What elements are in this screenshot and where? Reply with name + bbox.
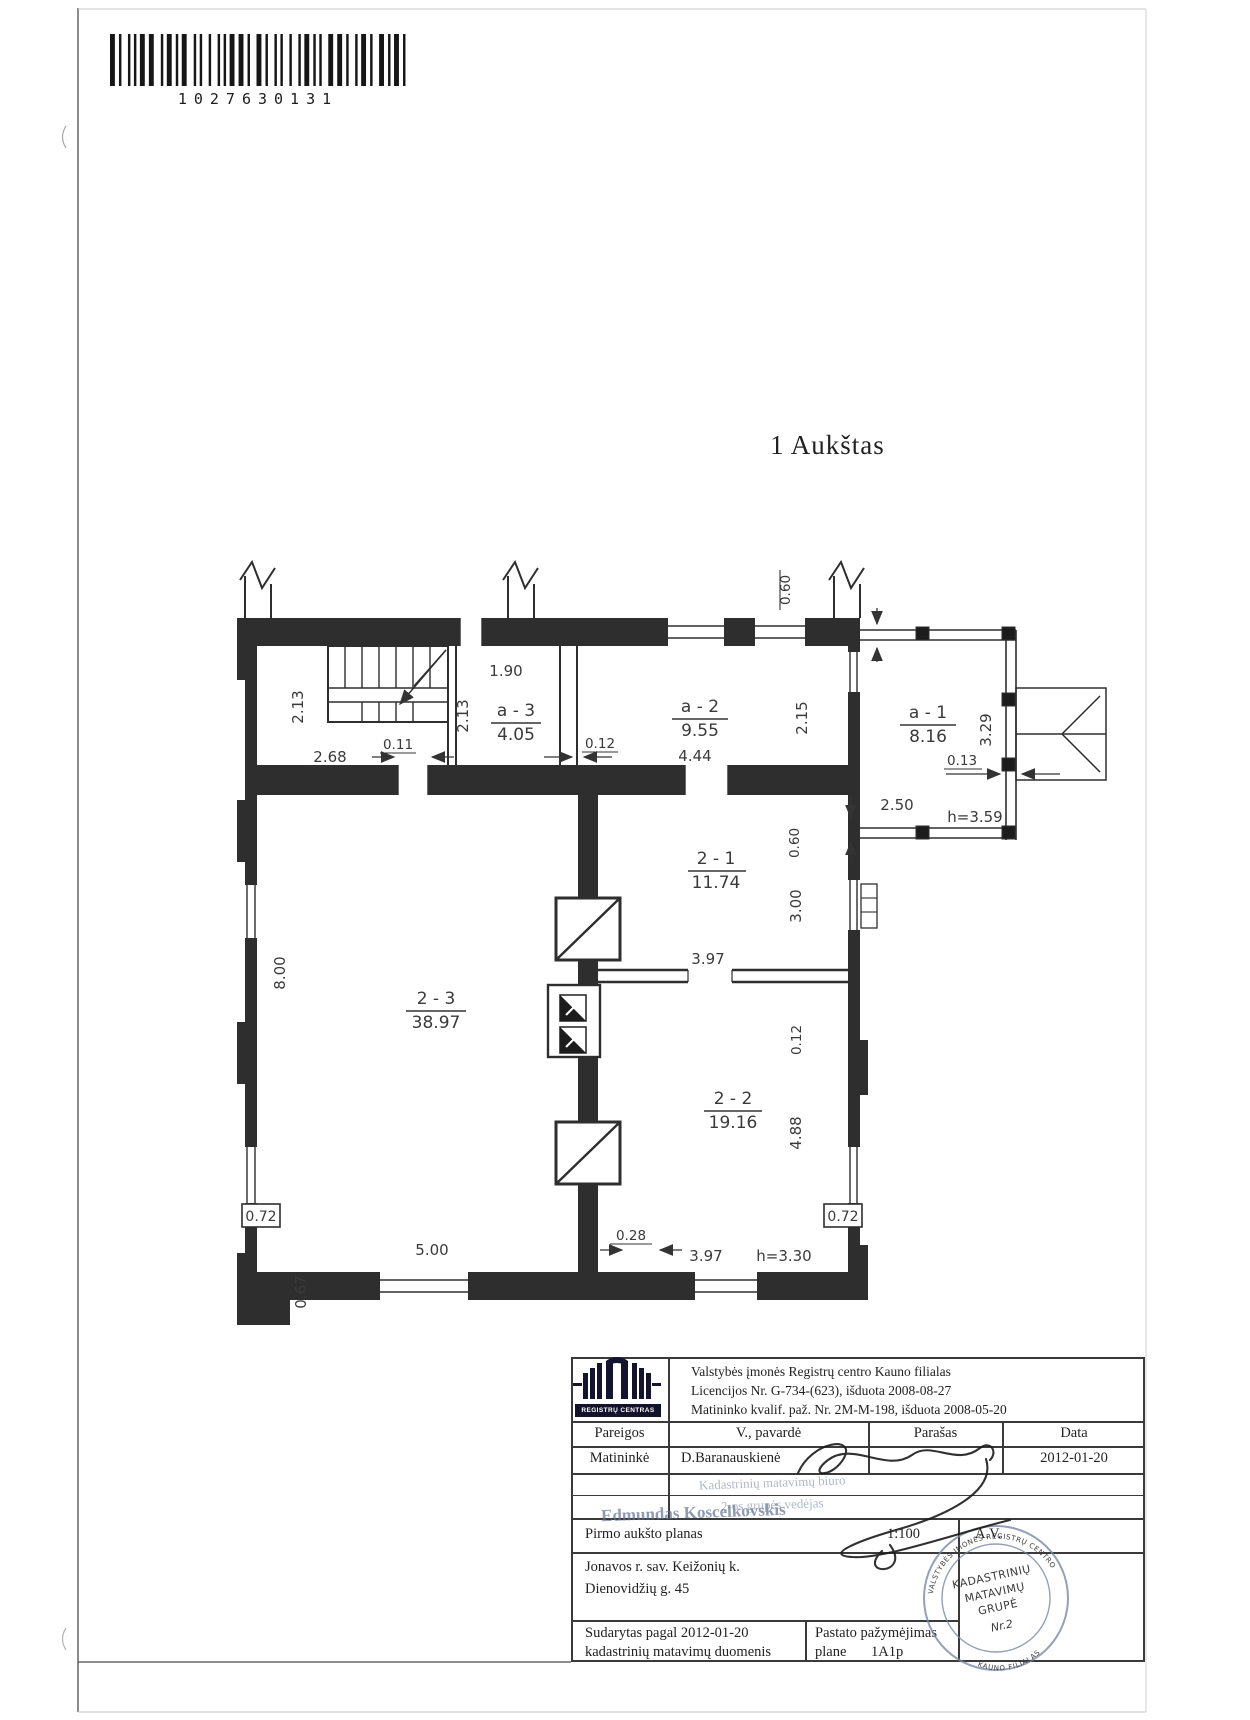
dim-2-68: 2.68 bbox=[313, 748, 346, 766]
org-line2: Licencijos Nr. G-734-(623), išduota 2008… bbox=[691, 1383, 951, 1399]
dim-4-88: 4.88 bbox=[787, 1116, 805, 1149]
dim-0-60-top: 0.60 bbox=[778, 575, 794, 605]
row-pareigos: Matininkė bbox=[571, 1450, 668, 1467]
marking-label2: plane bbox=[815, 1644, 846, 1661]
svg-text:2 - 3: 2 - 3 bbox=[417, 989, 456, 1009]
prepared-line1: Sudarytas pagal 2012-01-20 bbox=[585, 1625, 749, 1642]
marking-value: 1A1p bbox=[871, 1644, 903, 1661]
plan-title: Pirmo aukšto planas bbox=[585, 1526, 703, 1543]
logo-emblem-icon bbox=[571, 1357, 663, 1403]
room-label-2-1: 2 - 1 11.74 bbox=[688, 849, 746, 893]
svg-text:8.16: 8.16 bbox=[909, 727, 947, 747]
wall-break-marks bbox=[240, 562, 864, 618]
col-pareigos: Pareigos bbox=[571, 1425, 668, 1442]
logo-text: REGISTRŲ CENTRAS bbox=[575, 1404, 661, 1417]
dim-3-29: 3.29 bbox=[977, 713, 995, 746]
address-line2: Dienovidžių g. 45 bbox=[585, 1581, 689, 1598]
svg-text:4.05: 4.05 bbox=[497, 725, 535, 745]
plan-walls bbox=[237, 618, 868, 1325]
barcode-bars bbox=[108, 34, 408, 86]
svg-text:19.16: 19.16 bbox=[709, 1113, 758, 1133]
dim-0-12-22: 0.12 bbox=[789, 1025, 805, 1055]
staircase bbox=[328, 646, 448, 722]
dim-1-90: 1.90 bbox=[489, 662, 522, 680]
dim-0-11: 0.11 bbox=[383, 737, 413, 753]
room-label-2-3: 2 - 3 38.97 bbox=[406, 989, 466, 1033]
svg-text:KAUNO FILIALAS: KAUNO FILIALAS bbox=[975, 1647, 1044, 1678]
dim-2-13-a3: 2.13 bbox=[454, 699, 472, 732]
dim-0-60-21: 0.60 bbox=[787, 828, 803, 858]
interior-partitions bbox=[448, 646, 848, 982]
dim-3-97-bottom: 3.97 bbox=[689, 1247, 722, 1265]
room-label-a3: a - 3 4.05 bbox=[491, 701, 541, 745]
dim-0-13: 0.13 bbox=[947, 753, 977, 769]
signature bbox=[760, 1433, 1050, 1588]
svg-text:a - 1: a - 1 bbox=[909, 703, 947, 723]
dim-h-3-59: h=3.59 bbox=[947, 808, 1002, 826]
dim-4-44: 4.44 bbox=[678, 747, 711, 765]
stove-symbols bbox=[548, 898, 620, 1184]
prepared-line2: kadastrinių matavimų duomenis bbox=[585, 1644, 771, 1661]
dim-0-72-right: 0.72 bbox=[827, 1209, 858, 1225]
ghost-line3: Edmundas Koscelkovskis bbox=[601, 1500, 786, 1526]
dim-0-67: 0.67 bbox=[292, 1275, 310, 1308]
room-label-a1: a - 1 8.16 bbox=[900, 703, 956, 747]
dim-2-50: 2.50 bbox=[880, 796, 913, 814]
svg-text:a - 2: a - 2 bbox=[681, 697, 719, 717]
svg-text:2 - 1: 2 - 1 bbox=[697, 849, 736, 869]
exterior-stairs bbox=[1016, 688, 1106, 780]
address-line1: Jonavos r. sav. Keižonių k. bbox=[585, 1559, 740, 1576]
dim-0-12-a3: 0.12 bbox=[585, 736, 615, 752]
svg-text:38.97: 38.97 bbox=[412, 1013, 461, 1033]
dim-2-13-stairhall: 2.13 bbox=[289, 690, 307, 723]
barcode: 1027630131 bbox=[108, 34, 408, 118]
dim-3-97-mid: 3.97 bbox=[691, 950, 724, 968]
dim-2-15: 2.15 bbox=[793, 701, 811, 734]
svg-text:2 - 2: 2 - 2 bbox=[714, 1089, 753, 1109]
room-label-2-2: 2 - 2 19.16 bbox=[704, 1089, 762, 1133]
dim-8-00: 8.00 bbox=[271, 956, 289, 989]
stamp-arc-bottom: KAUNO FILIALAS bbox=[975, 1647, 1044, 1678]
org-line1: Valstybės įmonės Registrų centro Kauno f… bbox=[691, 1364, 951, 1380]
floor-title: 1 Aukštas bbox=[770, 430, 970, 461]
svg-text:a - 3: a - 3 bbox=[497, 701, 535, 721]
barcode-number: 1027630131 bbox=[108, 90, 408, 108]
dim-0-28: 0.28 bbox=[616, 1228, 646, 1244]
dim-072-boxes bbox=[242, 1204, 862, 1227]
dim-h-3-30: h=3.30 bbox=[756, 1247, 811, 1265]
stamp-line4: Nr.2 bbox=[990, 1617, 1014, 1634]
dimension-underlines bbox=[308, 570, 982, 1244]
dim-5-00: 5.00 bbox=[415, 1241, 448, 1259]
registru-centras-logo: REGISTRŲ CENTRAS bbox=[571, 1357, 668, 1421]
scanned-cadastral-document: { "page": { "barcode_number": "102763013… bbox=[0, 0, 1250, 1720]
dim-3-00: 3.00 bbox=[787, 889, 805, 922]
dim-0-72-left: 0.72 bbox=[245, 1209, 276, 1225]
svg-text:9.55: 9.55 bbox=[681, 721, 719, 741]
svg-text:11.74: 11.74 bbox=[692, 873, 741, 893]
room-label-a2: a - 2 9.55 bbox=[672, 697, 728, 741]
org-line3: Matininko kvalif. paž. Nr. 2M-M-198, išd… bbox=[691, 1402, 1007, 1418]
